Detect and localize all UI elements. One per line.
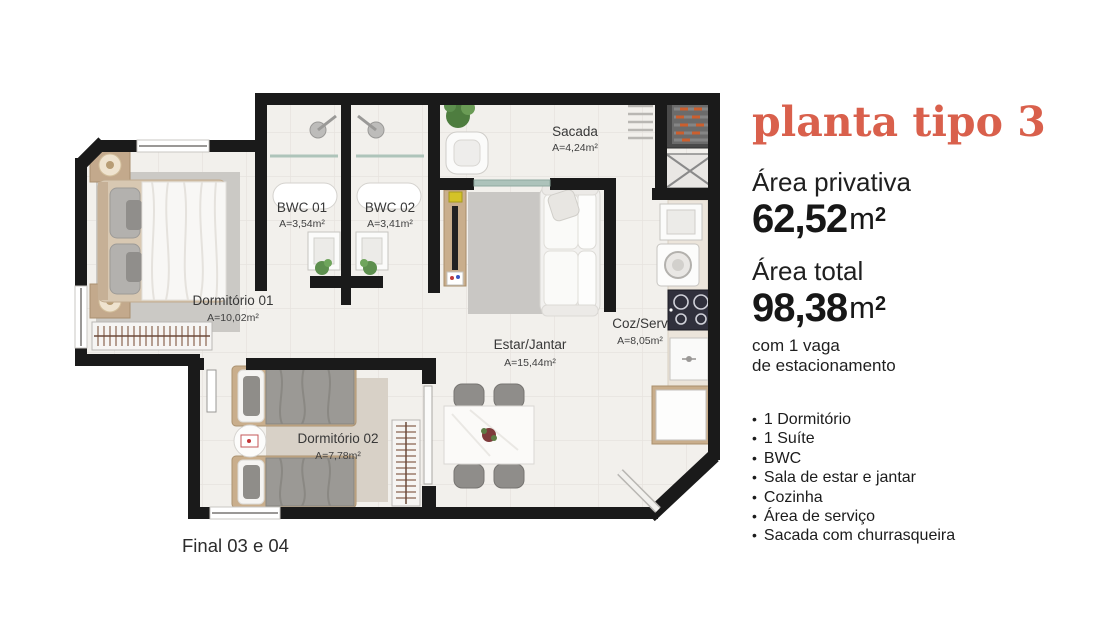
feature-item: 1 Suíte xyxy=(752,429,1097,448)
feature-item: Área de serviço xyxy=(752,507,1097,526)
total-area-exponent: 2 xyxy=(875,283,886,325)
wardrobe-dormitorio-02 xyxy=(392,420,420,506)
room-label-dorm01: Dormitório 01 xyxy=(192,293,273,308)
feature-item: Cozinha xyxy=(752,488,1097,507)
private-area-value: 62,52 m 2 xyxy=(752,198,1097,240)
total-area-block: Área total 98,38 m 2 com 1 vaga de estac… xyxy=(752,256,1097,376)
private-area-label: Área privativa xyxy=(752,167,1097,197)
sliding-glass-door xyxy=(474,180,550,186)
sliding-door-leaf xyxy=(424,386,432,484)
single-bed-2 xyxy=(232,456,356,508)
room-area-coz: A=8,05m² xyxy=(617,335,663,347)
room-label-coz: Coz/Serv xyxy=(612,316,668,331)
page: Sacada A=4,24m² BWC 01 A=3,54m² BWC 02 A… xyxy=(0,0,1100,629)
washing-machine xyxy=(657,244,699,286)
laundry-sink xyxy=(660,204,702,240)
room-area-bwc01: A=3,54m² xyxy=(279,218,325,230)
parking-note: com 1 vaga de estacionamento xyxy=(752,336,1097,376)
feature-item: 1 Dormitório xyxy=(752,410,1097,429)
feature-list: 1 Dormitório 1 Suíte BWC Sala de estar e… xyxy=(752,410,1097,546)
double-bed xyxy=(98,180,226,302)
room-area-sacada: A=4,24m² xyxy=(552,142,598,154)
room-area-dorm01: A=10,02m² xyxy=(207,312,259,324)
round-side-table xyxy=(234,425,266,457)
feature-item: BWC xyxy=(752,449,1097,468)
parking-note-line1: com 1 vaga xyxy=(752,336,1097,356)
private-area-exponent: 2 xyxy=(875,194,886,236)
floor-plan: Sacada A=4,24m² BWC 01 A=3,54m² BWC 02 A… xyxy=(70,88,730,528)
tv xyxy=(452,206,458,270)
room-label-dorm02: Dormitório 02 xyxy=(297,431,378,446)
cooktop xyxy=(668,290,712,330)
door-leaf xyxy=(207,370,216,412)
total-area-value: 98,38 m 2 xyxy=(752,287,1097,329)
room-area-bwc02: A=3,41m² xyxy=(367,218,413,230)
total-area-label: Área total xyxy=(752,256,1097,286)
info-panel: planta tipo 3 Área privativa 62,52 m 2 Á… xyxy=(752,102,1097,546)
private-area-block: Área privativa 62,52 m 2 xyxy=(752,167,1097,240)
room-label-estar: Estar/Jantar xyxy=(494,337,567,352)
room-label-bwc01: BWC 01 xyxy=(277,200,327,215)
feature-item: Sacada com churrasqueira xyxy=(752,526,1097,545)
duct-shaft xyxy=(666,154,714,188)
private-area-unit: m xyxy=(849,198,875,240)
tv-rack xyxy=(444,190,466,286)
picture-frame xyxy=(447,272,463,285)
total-area-number: 98,38 xyxy=(752,287,847,329)
page-title: planta tipo 3 xyxy=(752,102,1097,143)
fridge xyxy=(652,386,714,444)
single-bed-1 xyxy=(232,366,356,426)
wardrobe-dormitorio-01 xyxy=(92,322,212,350)
kitchen-cabinet xyxy=(670,338,708,380)
parking-note-line2: de estacionamento xyxy=(752,356,1097,376)
sofa xyxy=(540,184,600,316)
unit-number-note: Final 03 e 04 xyxy=(182,535,289,557)
feature-item: Sala de estar e jantar xyxy=(752,468,1097,487)
room-area-dorm02: A=7,78m² xyxy=(315,450,361,462)
room-label-bwc02: BWC 02 xyxy=(365,200,415,215)
room-area-estar: A=15,44m² xyxy=(504,357,556,369)
room-label-sacada: Sacada xyxy=(552,124,598,139)
total-area-unit: m xyxy=(849,287,875,329)
private-area-number: 62,52 xyxy=(752,198,847,240)
